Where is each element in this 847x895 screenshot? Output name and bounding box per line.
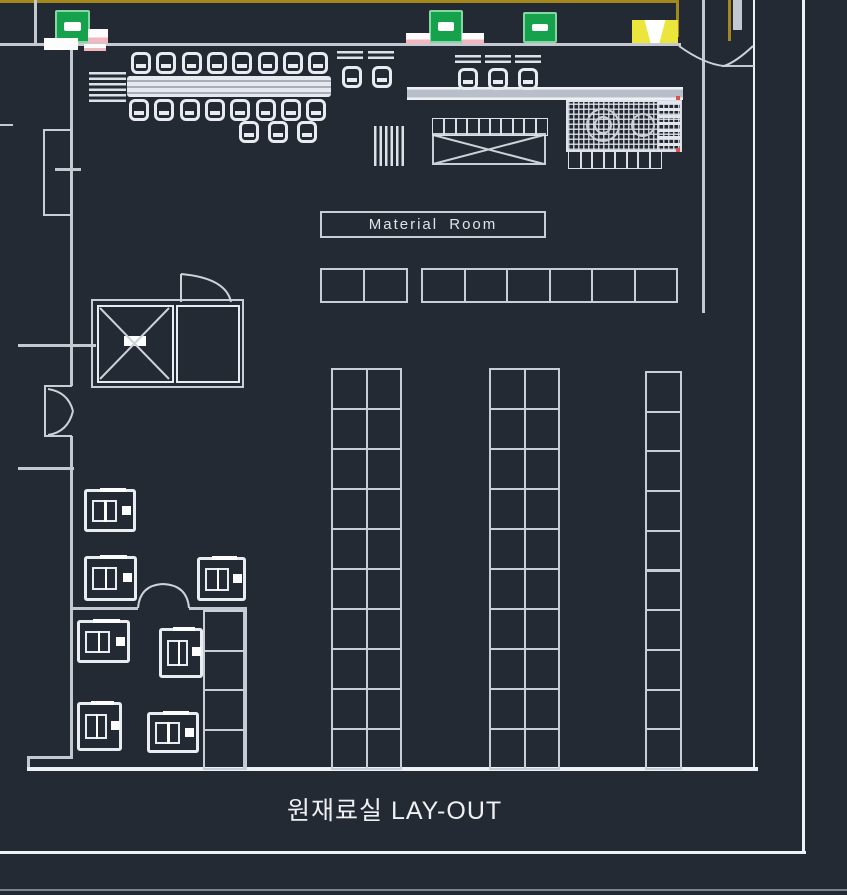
machine-top-tab (91, 701, 114, 705)
chair-icon (182, 52, 202, 74)
rack-column-2-cell (489, 568, 526, 610)
chair-icon (268, 121, 288, 143)
shelf-row-right-cell (421, 268, 466, 303)
chair-seat (273, 133, 283, 137)
chair-seat (347, 78, 357, 82)
door-sign-dash-icon (64, 22, 81, 30)
chair-seat (311, 111, 321, 115)
wall-niche-tick (55, 168, 81, 171)
chair-seat (523, 80, 533, 84)
rack-column-1-cell (331, 528, 368, 570)
elevator-lobby-room (176, 305, 240, 383)
chair-icon (180, 99, 200, 121)
hatched-equipment (89, 72, 126, 105)
rack-column-2-cell (489, 408, 526, 450)
machine-top-tab (100, 555, 127, 559)
machine-icon (84, 489, 136, 532)
equipment-rack-fins (657, 100, 682, 152)
equipment-bottom-cells-cell (649, 151, 663, 169)
rack-column-2-cell (524, 608, 561, 650)
rack-column-2-cell (489, 608, 526, 650)
hatched-equipment (455, 55, 481, 66)
chair-seat (136, 64, 146, 68)
rack-column-1-cell (366, 568, 403, 610)
chair-icon (297, 121, 317, 143)
machine-knob (185, 728, 194, 737)
chair-seat (286, 111, 296, 115)
chair-icon (230, 99, 250, 121)
wall-stub-1 (18, 344, 96, 347)
rack-column-3-cell (645, 728, 682, 770)
wall-tick-pink (84, 44, 106, 51)
rack-column-2-cell (524, 448, 561, 490)
chair-icon (342, 66, 362, 88)
equipment-red-dot (676, 148, 680, 152)
wall-corridor-inner (702, 0, 705, 313)
chair-icon (256, 99, 276, 121)
rack-column-3-cell (645, 649, 682, 691)
chair-seat (288, 64, 298, 68)
elevator-lobby-door-swing (181, 274, 231, 302)
wall-block-white (44, 38, 78, 50)
machine-top-tab (212, 556, 237, 560)
wall-tick-pink (88, 29, 108, 43)
rack-column-2-cell (524, 528, 561, 570)
entry-recess (44, 385, 72, 437)
rack-column-1-cell (366, 728, 403, 770)
annotation-lines (0, 0, 847, 895)
chair-seat (237, 64, 247, 68)
rack-column-1-cell (366, 368, 403, 410)
rack-column-1-cell (366, 648, 403, 690)
chair-icon (205, 99, 225, 121)
rack-column-1-cell (366, 688, 403, 730)
chair-icon (306, 99, 326, 121)
storage-cells-column-cell (203, 610, 247, 652)
machine-divider (96, 714, 99, 739)
chair-seat (261, 111, 271, 115)
wall-outer-bottom (0, 851, 806, 854)
chair-seat (210, 111, 220, 115)
chair-icon (458, 68, 478, 90)
chair-seat (302, 133, 312, 137)
rack-column-1-cell (331, 568, 368, 610)
rack-column-1-cell (366, 448, 403, 490)
rack-column-1-cell (366, 408, 403, 450)
door-header-line (722, 65, 754, 67)
conveyor-line (407, 87, 683, 100)
wall-outer-right (802, 0, 805, 853)
equipment-red-dot (676, 96, 680, 100)
rack-column-2-cell (524, 488, 561, 530)
desk-row-band (127, 76, 331, 97)
chair-seat (244, 133, 254, 137)
machine-divider (105, 567, 108, 590)
material-room-label-box: Material Room (320, 211, 546, 238)
crossed-worktable (432, 133, 546, 165)
rack-column-1-cell (366, 608, 403, 650)
chair-seat (313, 64, 323, 68)
wall-step-horizontal (27, 756, 73, 759)
machine-divider (98, 631, 101, 653)
exit-sign-yellow (632, 20, 678, 43)
chair-icon (156, 52, 176, 74)
wall-left-edge-stub (0, 124, 13, 126)
viewport-bottom-edge (0, 889, 847, 891)
rack-column-2-cell (524, 568, 561, 610)
wall-tick-pink (406, 33, 430, 44)
rack-column-2-cell (489, 368, 526, 410)
rack-column-1-cell (331, 408, 368, 450)
rack-column-1-cell (331, 688, 368, 730)
door-sign-dash-icon (438, 22, 455, 30)
shelf-row-right-cell (634, 268, 679, 303)
chair-icon (283, 52, 303, 74)
hatched-equipment (368, 51, 394, 62)
rack-column-3-cell (645, 689, 682, 731)
hatched-equipment (485, 55, 511, 66)
top-right-door-swing (679, 46, 753, 66)
chair-seat (212, 64, 222, 68)
wall-corridor-outer (753, 0, 755, 771)
machine-icon (197, 557, 246, 601)
machine-top-tab (93, 619, 120, 623)
rack-column-1-cell (331, 488, 368, 530)
shelf-row-right-cell (464, 268, 509, 303)
rack-column-3-cell (645, 490, 682, 532)
shelf-row-left-cell (363, 268, 408, 303)
chair-seat (493, 80, 503, 84)
rack-column-3-cell (645, 450, 682, 492)
machine-icon (77, 620, 130, 663)
chair-icon (281, 99, 301, 121)
shelf-row-right-cell (549, 268, 594, 303)
machine-icon (77, 702, 122, 751)
chair-seat (377, 78, 387, 82)
machine-divider (104, 500, 107, 522)
cad-viewport: Material Room 원재료실 LAY-OUT (0, 0, 847, 895)
hatched-equipment (374, 126, 404, 166)
boundary-line-top (0, 0, 678, 3)
rack-column-2-cell (524, 408, 561, 450)
rack-column-2-cell (524, 688, 561, 730)
machine-icon (147, 712, 199, 753)
rack-column-1-cell (331, 728, 368, 770)
rack-column-2-cell (489, 728, 526, 770)
rack-column-2-cell (524, 368, 561, 410)
chair-seat (161, 64, 171, 68)
shelf-row-right-cell (506, 268, 551, 303)
machine-icon (159, 628, 203, 678)
storage-cells-column-cell (203, 689, 247, 731)
wall-tick-pink (462, 33, 484, 44)
machine-divider (178, 640, 181, 666)
rack-column-2-cell (524, 728, 561, 770)
machine-top-tab (173, 627, 195, 631)
shelf-row-left-cell (320, 268, 365, 303)
machine-knob (111, 721, 120, 730)
rack-column-2-cell (489, 448, 526, 490)
chair-icon (129, 99, 149, 121)
machine-knob (192, 647, 201, 656)
rack-column-1-cell (331, 448, 368, 490)
machine-top-tab (163, 711, 189, 715)
chair-icon (154, 99, 174, 121)
boundary-line-right (728, 0, 731, 41)
worktable-top-cells-cell (535, 118, 548, 136)
machine-divider (167, 722, 170, 743)
chair-seat (185, 111, 195, 115)
storage-cells-column-cell (203, 729, 247, 771)
rack-column-1-cell (331, 608, 368, 650)
wall-stub-2 (18, 467, 74, 470)
machine-room-wall-top-left (70, 607, 138, 610)
machine-top-tab (100, 488, 126, 492)
machine-room-door-swing (138, 584, 189, 608)
rack-column-1-cell (331, 648, 368, 690)
machine-knob (233, 574, 242, 583)
rack-column-1-cell (366, 488, 403, 530)
rack-column-2-cell (489, 528, 526, 570)
chair-icon (232, 52, 252, 74)
chair-seat (235, 111, 245, 115)
chair-icon (518, 68, 538, 90)
material-room-label: Material Room (369, 216, 498, 233)
rack-column-3-cell (645, 570, 682, 612)
wall-left-lower (70, 436, 73, 758)
chair-seat (159, 111, 169, 115)
door-sign-green (523, 12, 557, 43)
machine-icon (84, 556, 137, 601)
rack-column-3-cell (645, 411, 682, 453)
rack-column-3-cell (645, 530, 682, 572)
rack-column-2-cell (524, 648, 561, 690)
rack-column-1-cell (331, 368, 368, 410)
machine-knob (116, 637, 125, 646)
machine-divider (217, 568, 220, 591)
chair-seat (187, 64, 197, 68)
rack-column-2-cell (489, 488, 526, 530)
chair-icon (488, 68, 508, 90)
chair-icon (239, 121, 259, 143)
shelf-row-right-cell (591, 268, 636, 303)
chair-seat (463, 80, 473, 84)
storage-cells-column-cell (203, 650, 247, 692)
door-sign-green (429, 10, 463, 43)
column-stub (733, 0, 742, 30)
wall-left-stub-top (34, 0, 37, 44)
machine-knob (123, 573, 132, 582)
machine-knob (122, 506, 131, 515)
rack-column-3-cell (645, 371, 682, 413)
chair-icon (372, 66, 392, 88)
chair-seat (134, 111, 144, 115)
hatched-equipment (337, 51, 363, 62)
chair-icon (258, 52, 278, 74)
chair-icon (131, 52, 151, 74)
rack-column-2-cell (489, 648, 526, 690)
rack-column-3-cell (645, 609, 682, 651)
chair-seat (263, 64, 273, 68)
chair-icon (308, 52, 328, 74)
wall-niche-box (43, 129, 72, 216)
elevator-car-marker (124, 336, 146, 346)
hatched-equipment (515, 55, 541, 66)
door-sign-dash-icon (532, 24, 549, 32)
chair-icon (207, 52, 227, 74)
drawing-title: 원재료실 LAY-OUT (287, 791, 502, 827)
rack-column-2-cell (489, 688, 526, 730)
exit-sign-lamp-icon (641, 20, 669, 43)
rack-column-1-cell (366, 528, 403, 570)
